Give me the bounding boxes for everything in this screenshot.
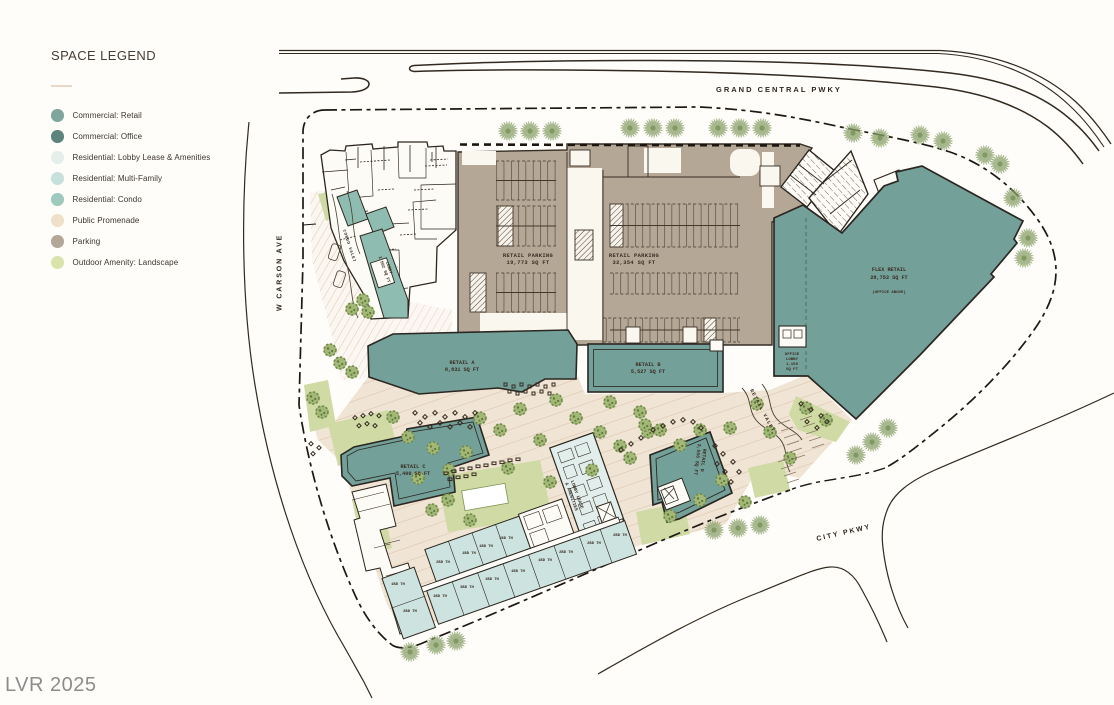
svg-text:2BD TH: 2BD TH	[613, 534, 627, 538]
svg-text:(OFFICE ABOVE): (OFFICE ABOVE)	[872, 290, 906, 295]
svg-text:RETAIL C: RETAIL C	[401, 464, 426, 470]
svg-text:RETAIL B: RETAIL B	[636, 362, 661, 368]
svg-text:3BD TH: 3BD TH	[460, 586, 474, 590]
svg-text:19,773 SQ FT: 19,773 SQ FT	[506, 260, 549, 266]
svg-text:1BD TH: 1BD TH	[433, 595, 447, 599]
svg-text:RETAIL A: RETAIL A	[450, 360, 476, 366]
svg-text:GRAND CENTRAL PWKY: GRAND CENTRAL PWKY	[716, 85, 842, 94]
svg-text:SQ FT: SQ FT	[786, 368, 799, 372]
svg-text:2BD TH: 2BD TH	[587, 542, 601, 546]
svg-text:5,400 SQ FT: 5,400 SQ FT	[396, 471, 430, 477]
svg-text:1BD TH: 1BD TH	[538, 559, 552, 563]
svg-text:5,527 SQ FT: 5,527 SQ FT	[631, 369, 665, 375]
svg-text:FLEX RETAIL: FLEX RETAIL	[872, 267, 906, 273]
svg-text:1BD TH: 1BD TH	[462, 552, 476, 556]
svg-text:1,150: 1,150	[786, 363, 799, 367]
svg-text:1BD TH: 1BD TH	[485, 578, 499, 582]
svg-text:1BD TH: 1BD TH	[511, 570, 525, 574]
svg-text:W CARSON AVE: W CARSON AVE	[277, 234, 284, 311]
svg-text:32,354 SQ FT: 32,354 SQ FT	[612, 260, 655, 266]
svg-text:1BD TH: 1BD TH	[391, 583, 405, 587]
svg-text:2BD TH: 2BD TH	[559, 551, 573, 555]
svg-text:2BD TH: 2BD TH	[436, 561, 450, 565]
svg-text:8,831 SQ FT: 8,831 SQ FT	[445, 367, 479, 373]
svg-text:28,753 SQ FT: 28,753 SQ FT	[870, 275, 907, 281]
svg-text:1BD TH: 1BD TH	[499, 537, 513, 541]
svg-text:RETAIL PARKING: RETAIL PARKING	[503, 253, 553, 259]
svg-text:LOBBY: LOBBY	[786, 358, 799, 362]
svg-text:CITY PKWY: CITY PKWY	[816, 524, 872, 543]
svg-text:2BD TH: 2BD TH	[403, 610, 417, 614]
svg-text:1BD TH: 1BD TH	[479, 545, 493, 549]
svg-text:OFFICE: OFFICE	[785, 353, 800, 357]
svg-text:RETAIL PARKING: RETAIL PARKING	[609, 253, 659, 259]
